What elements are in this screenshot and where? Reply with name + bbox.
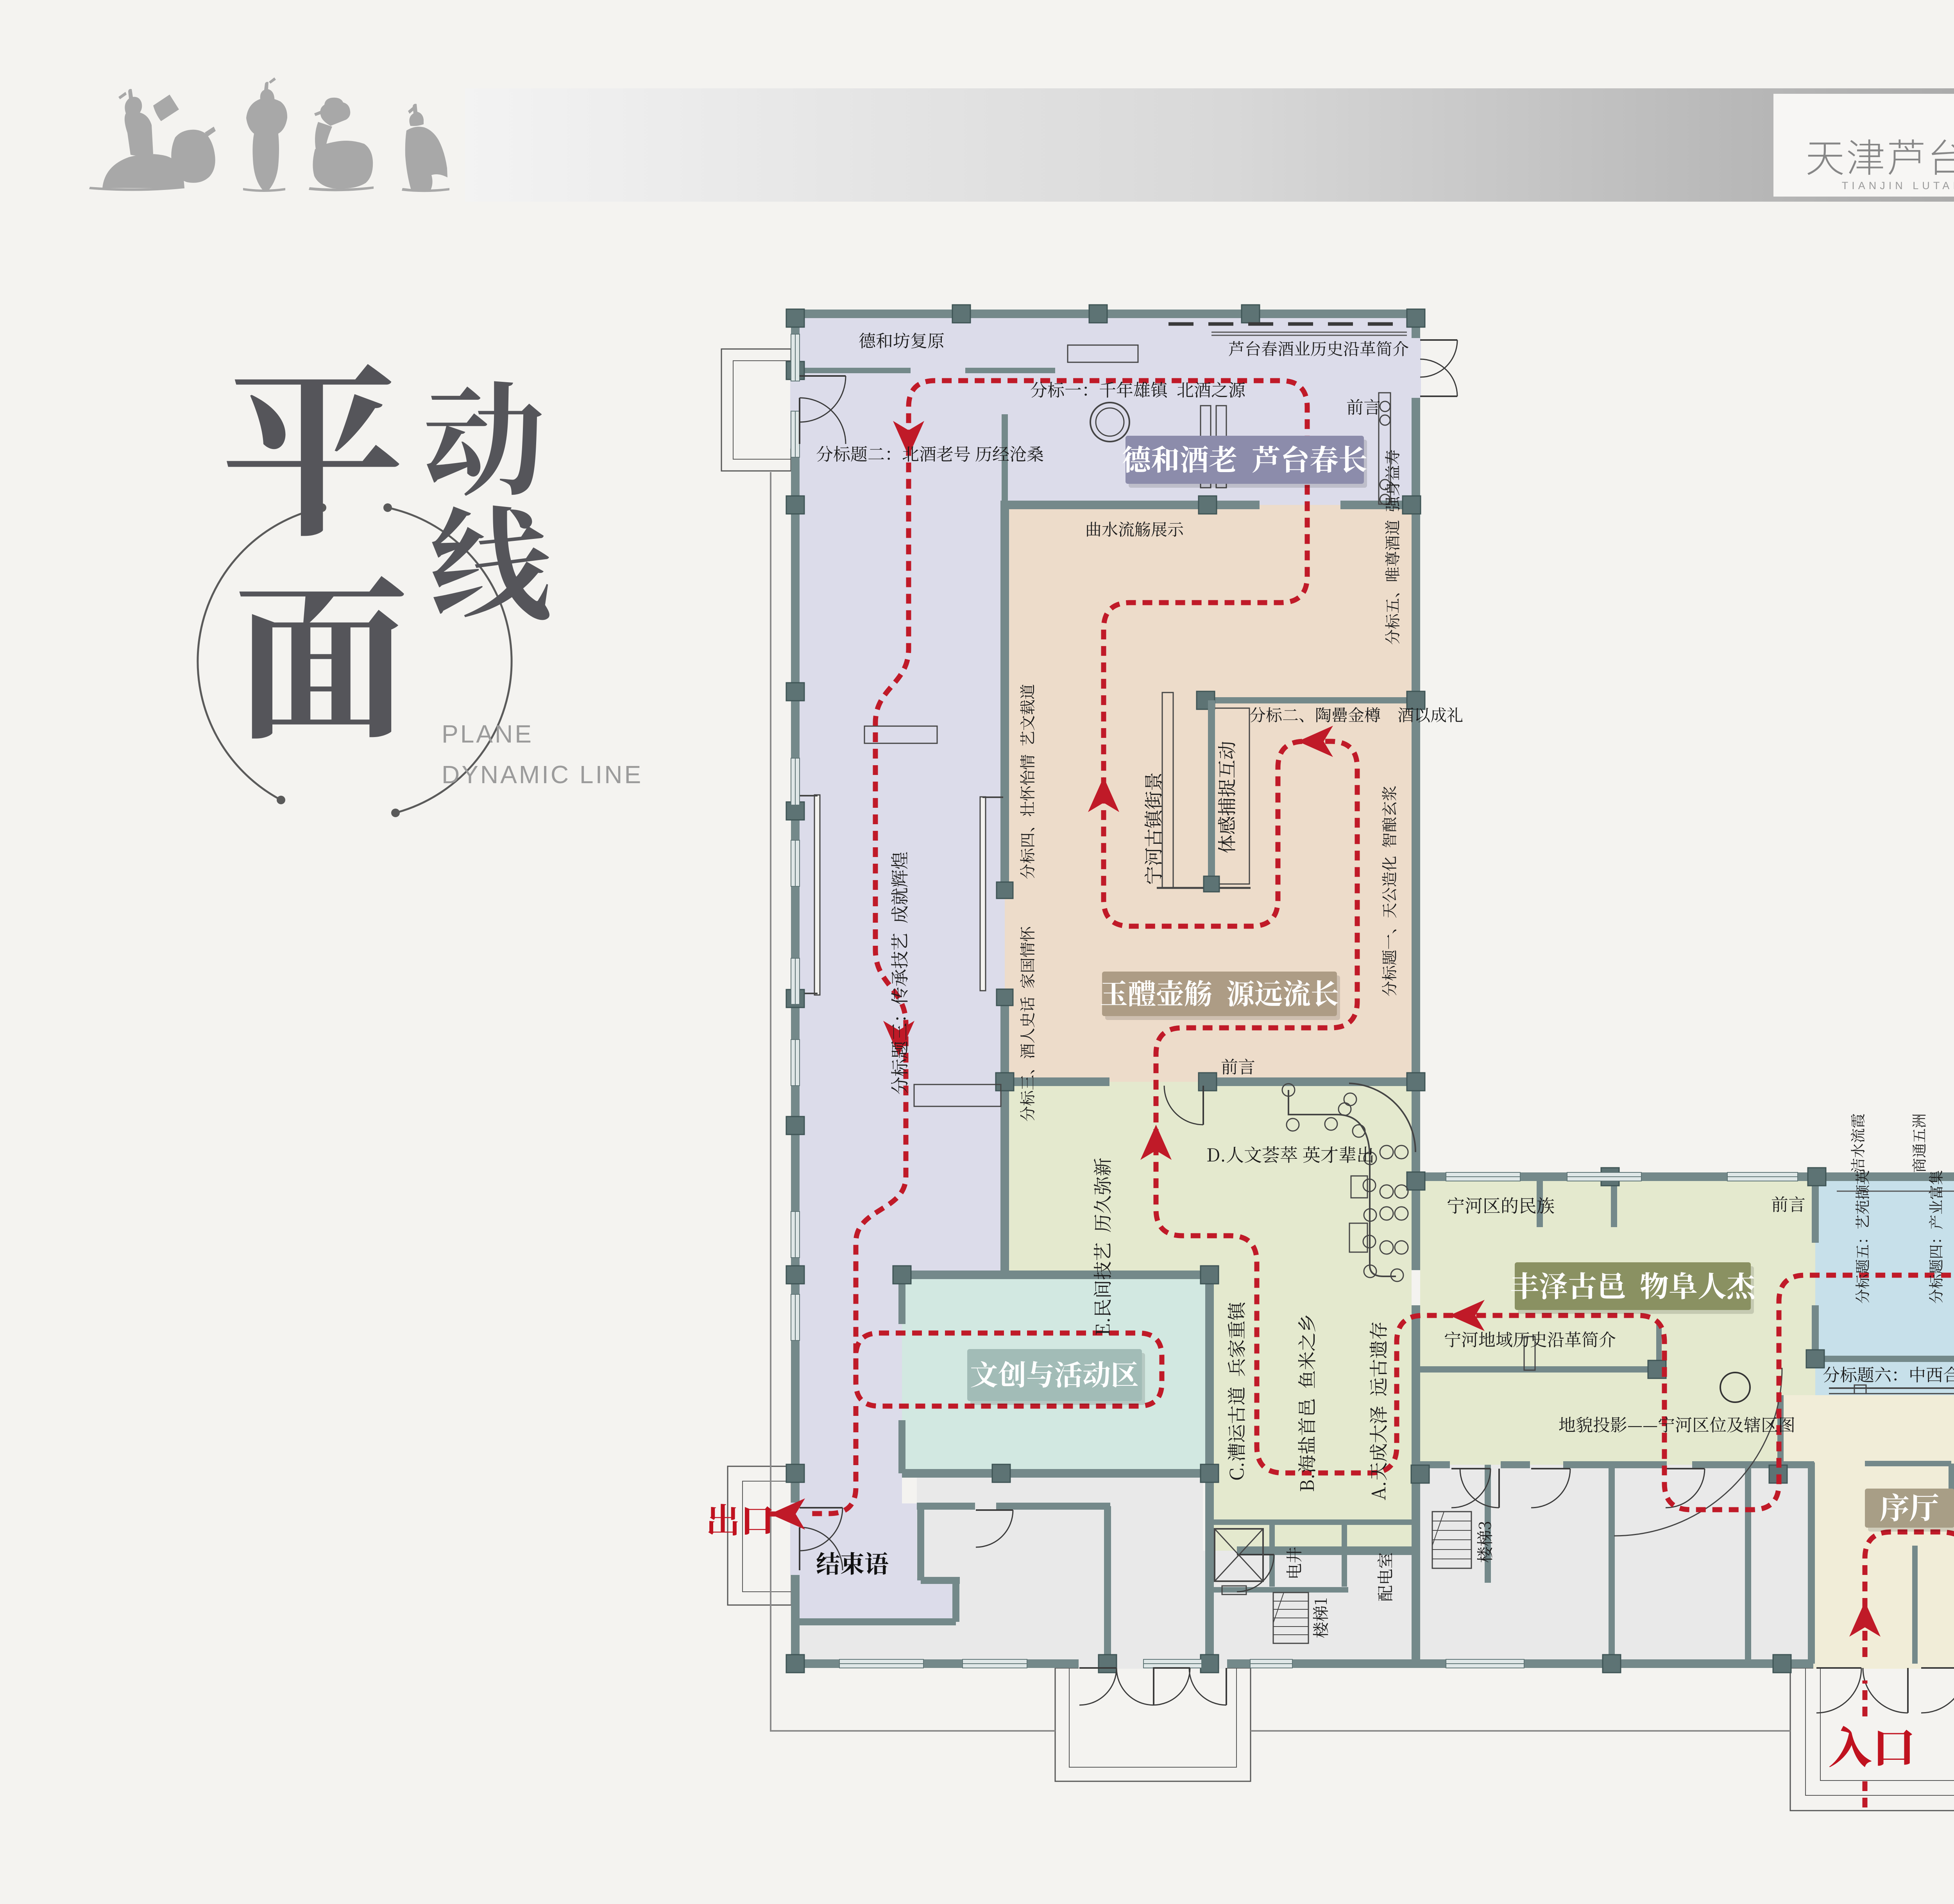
svg-text:PLANE: PLANE: [442, 720, 533, 748]
svg-text:DYNAMIC LINE: DYNAMIC LINE: [442, 761, 643, 789]
svg-text:TIANJIN LUTAICHUN CULTURAL CRE: TIANJIN LUTAICHUN CULTURAL CREATIVE INDU…: [1842, 180, 1954, 191]
